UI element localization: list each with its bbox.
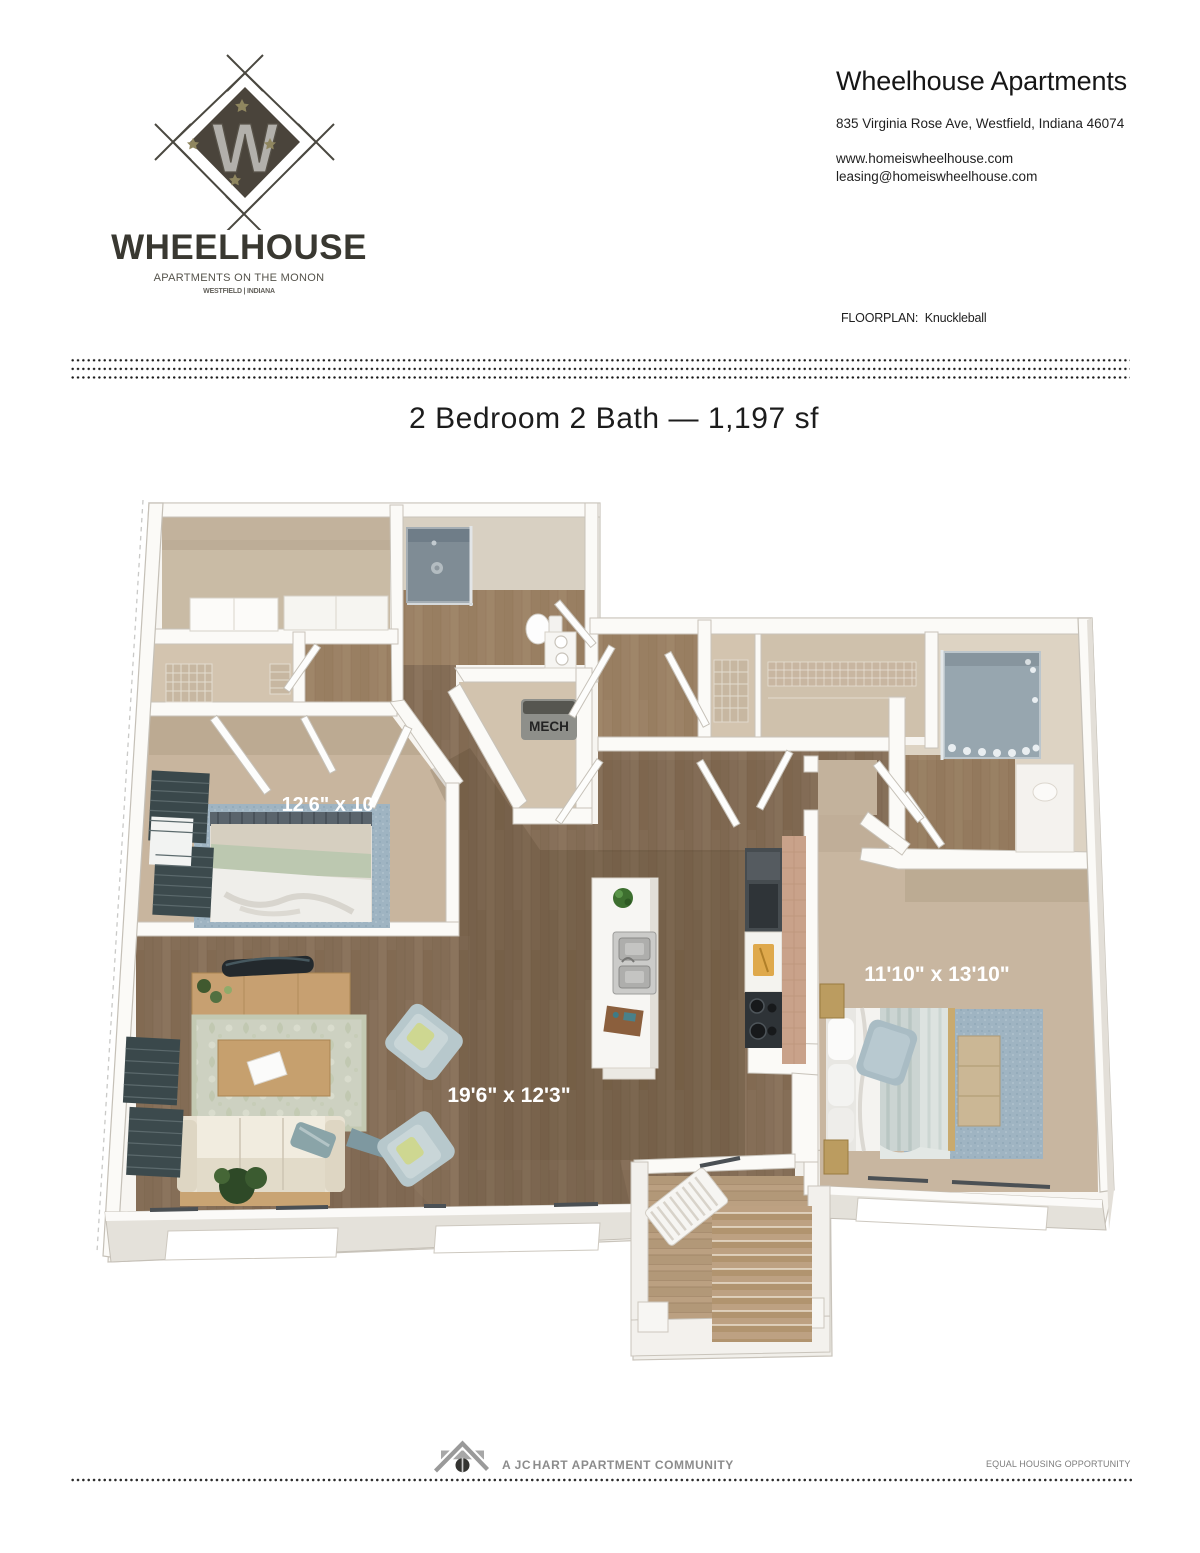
svg-text:12'6" x 10': 12'6" x 10': [282, 794, 379, 816]
svg-text:19'6" x 12'3": 19'6" x 12'3": [447, 1084, 570, 1107]
svg-text:MECH: MECH: [529, 719, 569, 734]
svg-text:11'10" x 13'10": 11'10" x 13'10": [864, 963, 1010, 986]
